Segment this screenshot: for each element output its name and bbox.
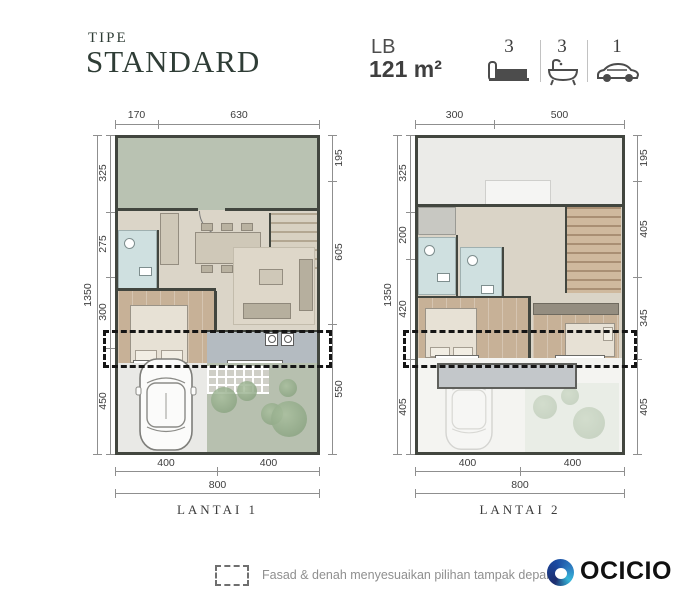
dim-l2-bottom-1: 400 (520, 457, 625, 469)
dim-l2-right-1: 405 (638, 209, 650, 249)
dim-line (415, 493, 625, 494)
stat-divider (540, 40, 541, 82)
dim-l2-left-1: 200 (397, 215, 409, 255)
dim-l1-left-2: 300 (97, 292, 109, 332)
car-icon (595, 60, 641, 89)
bathroom-count: 3 (548, 36, 576, 58)
dim-l2-top-0: 300 (415, 109, 494, 121)
facade-legend-swatch (215, 565, 249, 586)
ocicio-logo-icon (547, 559, 574, 586)
dim-l2-bottom-total: 800 (415, 479, 625, 491)
dim-line (115, 124, 320, 125)
dim-l1-top-1: 630 (158, 109, 320, 121)
dim-l2-right-2: 345 (638, 298, 650, 338)
dim-l2-right-3: 405 (638, 387, 650, 427)
dim-line (110, 135, 111, 455)
dim-l1-right-0: 195 (333, 138, 345, 178)
building-area-value: 121 m² (369, 56, 442, 83)
facade-note: Fasad & denah menyesuaikan pilihan tampa… (262, 568, 553, 582)
exterior-walls (115, 135, 320, 455)
dim-l1-left-outer: 1350 (82, 275, 94, 315)
bedroom-count: 3 (495, 36, 523, 58)
dim-line (115, 493, 320, 494)
dim-l2-left-outer: 1350 (382, 275, 394, 315)
type-name: STANDARD (86, 44, 260, 80)
bath-icon (545, 58, 581, 91)
dim-l1-left-3: 450 (97, 381, 109, 421)
dim-l2-bottom-0: 400 (415, 457, 520, 469)
dim-l2-left-0: 325 (397, 153, 409, 193)
dim-l1-bottom-1: 400 (217, 457, 320, 469)
lantai1-plan (115, 135, 320, 455)
facade-dashed-zone (403, 330, 637, 368)
facade-dashed-zone (103, 330, 332, 368)
dim-l1-left-0: 325 (97, 153, 109, 193)
floorplan-sheet: TIPE STANDARD LB 121 m² 3 3 1 170 (0, 0, 677, 600)
dim-l2-right-0: 195 (638, 138, 650, 178)
lantai2-label: LANTAI 2 (415, 502, 625, 518)
car-count: 1 (603, 36, 631, 58)
stat-divider (587, 40, 588, 82)
dim-l1-top-0: 170 (115, 109, 158, 121)
dim-l1-bottom-0: 400 (115, 457, 217, 469)
exterior-walls (415, 135, 625, 455)
dim-l1-right-2: 550 (333, 369, 345, 409)
dim-line (415, 124, 625, 125)
dim-l2-left-2: 420 (397, 289, 409, 329)
bed-icon (487, 60, 531, 89)
dim-l1-bottom-total: 800 (115, 479, 320, 491)
lantai1-label: LANTAI 1 (115, 502, 320, 518)
dim-l2-top-1: 500 (494, 109, 625, 121)
lantai2-plan (415, 135, 625, 455)
ocicio-logo-text: OCICIO (580, 557, 672, 586)
dim-line (410, 135, 411, 455)
dim-l2-left-3: 405 (397, 387, 409, 427)
dim-l1-left-1: 275 (97, 224, 109, 264)
dim-l1-right-1: 605 (333, 232, 345, 272)
